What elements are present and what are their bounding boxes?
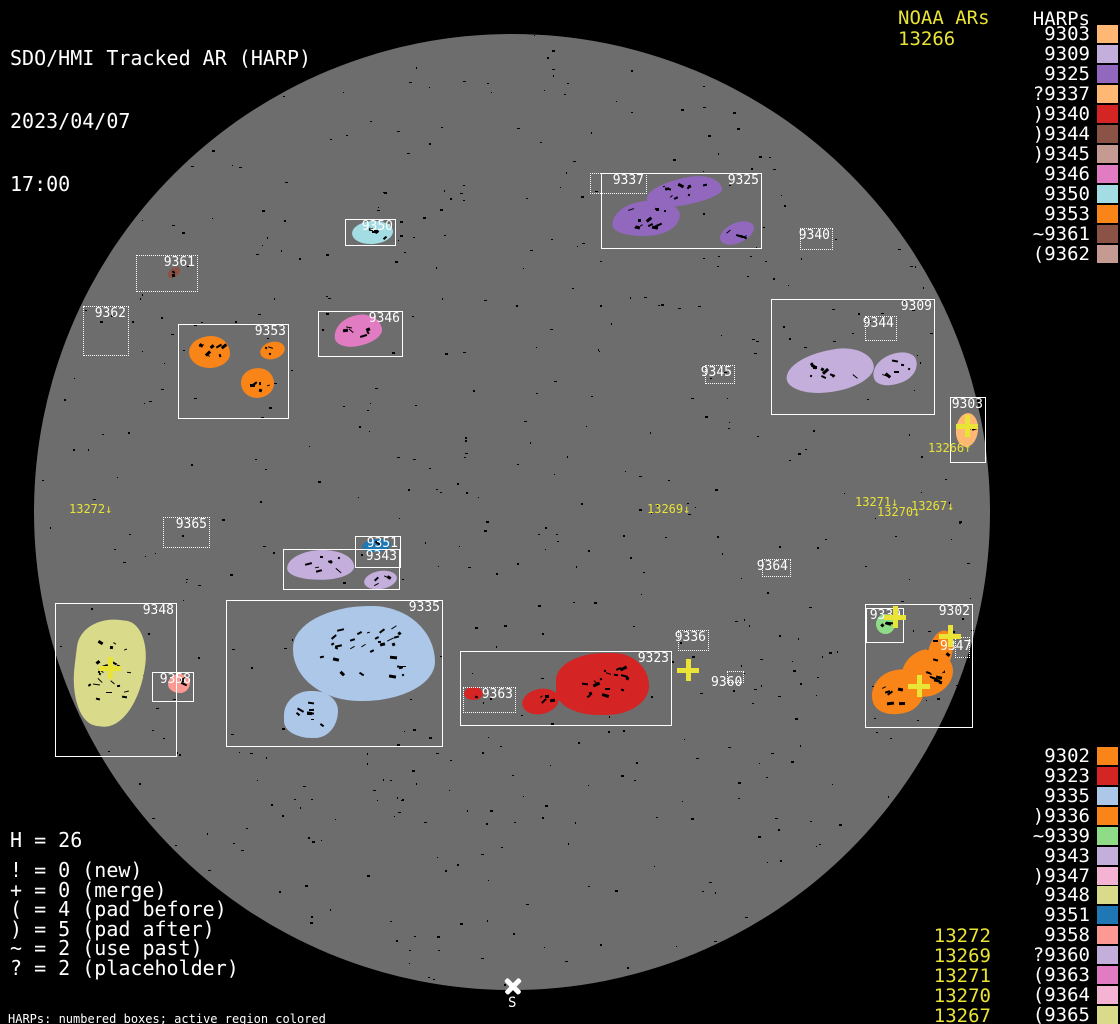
sunspot-speck bbox=[310, 922, 313, 924]
sunspot-speck bbox=[358, 497, 359, 498]
sunspot-speck bbox=[412, 316, 414, 317]
sunspot-speck bbox=[370, 403, 371, 404]
sunspot-speck bbox=[139, 783, 141, 785]
sunspot-speck bbox=[450, 760, 452, 761]
sunspot-speck bbox=[781, 195, 782, 196]
noaa-cross-13272 bbox=[99, 657, 121, 679]
sunspot-speck bbox=[634, 780, 636, 781]
sunspot-speck bbox=[330, 139, 332, 140]
sunspot-speck bbox=[788, 285, 789, 286]
harp-box-label-9365: 9365 bbox=[176, 518, 207, 532]
harp-number: 9346 bbox=[1044, 165, 1090, 184]
sunspot-speck bbox=[835, 239, 837, 240]
sunspot-speck bbox=[717, 266, 719, 267]
sunspot-speck bbox=[644, 297, 647, 298]
harp-number: 9343 bbox=[1044, 847, 1090, 866]
harp-count: H = 26 bbox=[10, 828, 82, 852]
harp-color-swatch bbox=[1097, 886, 1118, 904]
sunspot-speck bbox=[591, 132, 592, 134]
sunspot-speck bbox=[263, 546, 266, 547]
sunspot-speck bbox=[256, 254, 259, 255]
sunspot-speck bbox=[633, 626, 635, 627]
sunspot-speck bbox=[326, 254, 329, 256]
harp-number: ~9361 bbox=[1033, 225, 1090, 244]
harp-box-9343: 9343 bbox=[283, 549, 400, 590]
sunspot-speck bbox=[425, 542, 426, 544]
sunspot-speck bbox=[281, 250, 282, 252]
sunspot-speck bbox=[890, 738, 892, 739]
sunspot-speck bbox=[588, 550, 590, 552]
sunspot-speck bbox=[457, 864, 459, 866]
sunspot-speck bbox=[343, 406, 345, 407]
harp-number: ?9337 bbox=[1033, 85, 1090, 104]
sunspot-speck bbox=[876, 732, 878, 733]
sunspot-speck bbox=[478, 497, 479, 498]
sunspot-speck bbox=[481, 958, 484, 959]
sunspot-speck bbox=[754, 689, 757, 690]
harp-legend-item: )9344 bbox=[860, 125, 1118, 145]
sunspot-speck bbox=[271, 804, 273, 806]
sunspot-speck bbox=[761, 685, 762, 687]
sunspot-speck bbox=[504, 625, 507, 627]
sunspot-speck bbox=[661, 304, 664, 306]
footnotes: HARPs: numbered boxes; active region col… bbox=[8, 988, 427, 1024]
sunspot-speck bbox=[383, 779, 384, 781]
harp-legend-item: 9323 bbox=[860, 767, 1118, 787]
harp-number: )9345 bbox=[1033, 145, 1090, 164]
sunspot-speck bbox=[513, 933, 515, 935]
harp-color-swatch bbox=[1097, 165, 1118, 183]
sunspot-speck bbox=[747, 276, 749, 277]
noaa-label-13272: 13272↓ bbox=[69, 503, 112, 516]
sunspot-speck bbox=[526, 904, 529, 905]
sunspot-speck bbox=[959, 523, 961, 524]
sunspot-speck bbox=[408, 489, 410, 491]
sunspot-speck bbox=[501, 847, 503, 848]
sunspot-speck bbox=[428, 977, 430, 978]
sunspot-speck bbox=[42, 480, 44, 481]
sunspot-speck bbox=[436, 267, 437, 269]
sunspot-speck bbox=[588, 785, 589, 786]
sunspot-speck bbox=[758, 836, 761, 838]
time-line: 17:00 bbox=[10, 174, 311, 195]
harp-legend-item: 9335 bbox=[860, 787, 1118, 807]
sunspot-speck bbox=[198, 585, 201, 586]
harp-box-label-9360: 9360 bbox=[711, 676, 742, 690]
sunspot-speck bbox=[752, 339, 755, 340]
sunspot-speck bbox=[773, 169, 776, 170]
sunspot-speck bbox=[793, 670, 796, 672]
noaa-cross-13269 bbox=[677, 659, 699, 681]
sunspot-speck bbox=[778, 696, 781, 697]
sunspot-speck bbox=[465, 437, 467, 439]
sunspot-speck bbox=[921, 492, 922, 493]
harp-legend-item: 9346 bbox=[860, 165, 1118, 185]
sunspot-speck bbox=[568, 843, 569, 845]
harp-legend-item: )9345 bbox=[860, 145, 1118, 165]
sunspot-speck bbox=[909, 434, 910, 436]
harp-number: 9323 bbox=[1044, 767, 1090, 786]
harp-box-9345: 9345 bbox=[705, 365, 735, 384]
sunspot-speck bbox=[475, 627, 478, 629]
sunspot-speck bbox=[771, 753, 774, 754]
sunspot-speck bbox=[825, 539, 827, 540]
sunspot-speck bbox=[161, 317, 163, 319]
sunspot-speck bbox=[728, 747, 731, 748]
harp-box-9361: 9361 bbox=[136, 255, 198, 292]
sunspot-speck bbox=[817, 677, 819, 678]
sunspot-speck bbox=[722, 553, 723, 555]
sunspot-speck bbox=[416, 783, 417, 785]
sunspot-speck bbox=[901, 601, 904, 602]
sunspot-speck bbox=[140, 298, 141, 300]
sunspot-speck bbox=[668, 480, 670, 481]
sunspot-speck bbox=[654, 866, 655, 867]
sunspot-speck bbox=[415, 405, 417, 406]
sunspot-speck bbox=[449, 790, 450, 791]
sunspot-speck bbox=[792, 661, 793, 662]
sunspot-speck bbox=[639, 476, 642, 477]
sunspot-speck bbox=[798, 453, 801, 455]
harp-legend-item: ?9337 bbox=[860, 85, 1118, 105]
harp-number: (9363 bbox=[1033, 966, 1090, 985]
sunspot-speck bbox=[318, 481, 321, 483]
sunspot-speck bbox=[466, 492, 468, 494]
symbol-legend: ! = 0 (new)+ = 0 (merge)( = 4 (pad befor… bbox=[10, 861, 239, 978]
harp-number: 9335 bbox=[1044, 787, 1090, 806]
harp-legend-item: 9350 bbox=[860, 185, 1118, 205]
harp-legend-item: 9302 bbox=[860, 747, 1118, 767]
sunspot-speck bbox=[573, 161, 576, 162]
harp-color-swatch bbox=[1097, 65, 1118, 83]
south-pole-label: S bbox=[508, 995, 516, 1011]
sunspot-speck bbox=[682, 801, 683, 802]
sunspot-speck bbox=[729, 422, 730, 423]
harp-color-swatch bbox=[1097, 205, 1118, 223]
sunspot-speck bbox=[465, 440, 467, 442]
sunspot-speck bbox=[129, 534, 131, 535]
harp-box-label-9353: 9353 bbox=[255, 325, 286, 339]
sunspot-speck bbox=[409, 950, 411, 951]
sunspot-speck bbox=[696, 758, 699, 759]
harp-color-swatch bbox=[1097, 807, 1118, 825]
sunspot-speck bbox=[517, 128, 520, 129]
harp-box-label-9346: 9346 bbox=[369, 312, 400, 326]
sunspot-speck bbox=[564, 94, 566, 95]
sunspot-speck bbox=[752, 703, 754, 704]
sunspot-speck bbox=[481, 854, 484, 855]
sunspot-speck bbox=[73, 449, 75, 451]
sunspot-speck bbox=[816, 695, 817, 696]
sunspot-speck bbox=[656, 817, 658, 818]
harp-box-label-9361: 9361 bbox=[164, 256, 195, 270]
sunspot-speck bbox=[550, 329, 553, 330]
sunspot-speck bbox=[412, 770, 415, 772]
sunspot-speck bbox=[413, 459, 416, 460]
harp-number: (9362 bbox=[1033, 245, 1090, 264]
sunspot-speck bbox=[512, 775, 514, 776]
sunspot-speck bbox=[400, 235, 403, 237]
sunspot-speck bbox=[152, 818, 155, 819]
sunspot-speck bbox=[578, 742, 580, 744]
noaa-label-13267: 13267↓ bbox=[911, 500, 954, 513]
sunspot-speck bbox=[588, 886, 590, 887]
sunspot-speck bbox=[717, 536, 719, 538]
harp-box-label-9323: 9323 bbox=[638, 652, 669, 666]
harp-legend-item: 9348 bbox=[860, 886, 1118, 906]
harp-color-swatch bbox=[1097, 986, 1118, 1004]
harp-color-swatch bbox=[1097, 145, 1118, 163]
sunspot-speck bbox=[487, 920, 488, 922]
sunspot-speck bbox=[572, 288, 574, 289]
harp-color-swatch bbox=[1097, 125, 1118, 143]
sunspot-speck bbox=[681, 109, 684, 111]
sunspot-speck bbox=[703, 171, 704, 172]
sunspot-speck bbox=[396, 940, 398, 942]
sunspot-speck bbox=[93, 499, 96, 500]
sunspot-speck bbox=[639, 509, 642, 511]
sunspot-speck bbox=[222, 519, 225, 521]
harp-box-9346: 9346 bbox=[318, 311, 403, 357]
harp-legend-item: 9325 bbox=[860, 65, 1118, 85]
sunspot-speck bbox=[375, 388, 378, 389]
harp-legend-item: 13271(9363 bbox=[860, 966, 1118, 986]
harp-box-label-9336: 9336 bbox=[675, 631, 706, 645]
harp-box-9363: 9363 bbox=[463, 687, 516, 713]
sunspot-speck bbox=[207, 833, 208, 835]
sunspot-speck bbox=[460, 193, 463, 194]
sunspot-speck bbox=[444, 190, 445, 192]
sunspot-speck bbox=[643, 572, 645, 573]
sunspot-speck bbox=[305, 885, 308, 887]
sunspot-speck bbox=[715, 892, 716, 894]
sunspot-speck bbox=[565, 961, 568, 962]
sunspot-speck bbox=[544, 947, 545, 948]
sunspot-speck bbox=[440, 209, 443, 211]
sunspot-speck bbox=[516, 305, 518, 307]
harp-number: 9358 bbox=[1044, 926, 1090, 945]
sunspot-speck bbox=[627, 967, 629, 969]
harp-color-swatch bbox=[1097, 867, 1118, 885]
harp-box-label-9358: 9358 bbox=[160, 673, 191, 687]
sunspot-speck bbox=[822, 656, 823, 658]
sunspot-speck bbox=[383, 192, 384, 193]
sunspot-speck bbox=[779, 546, 781, 548]
sunspot-speck bbox=[250, 753, 253, 754]
sunspot-speck bbox=[258, 314, 261, 315]
sunspot-speck bbox=[733, 112, 736, 114]
harp-box-9309: 9309 bbox=[771, 299, 935, 415]
sunspot-speck bbox=[367, 753, 368, 755]
sunspot-speck bbox=[576, 566, 577, 568]
sunspot-speck bbox=[273, 552, 275, 554]
sunspot-speck bbox=[266, 757, 267, 759]
harp-box-label-9335: 9335 bbox=[409, 601, 440, 615]
harp-number: (9365 bbox=[1033, 1006, 1090, 1024]
sunspot-speck bbox=[631, 70, 633, 72]
harp-number: )9344 bbox=[1033, 125, 1090, 144]
sunspot-speck bbox=[175, 845, 177, 846]
sunspot-speck bbox=[377, 800, 378, 801]
sunspot-speck bbox=[488, 880, 489, 881]
sunspot-speck bbox=[909, 579, 910, 580]
sunspot-speck bbox=[750, 256, 752, 257]
harp-legend-item: )9340 bbox=[860, 105, 1118, 125]
sunspot-speck bbox=[631, 112, 633, 113]
harp-color-swatch bbox=[1097, 787, 1118, 805]
sunspot-speck bbox=[416, 67, 417, 69]
sunspot-speck bbox=[442, 298, 443, 300]
title-line: SDO/HMI Tracked AR (HARP) bbox=[10, 48, 311, 69]
sunspot-speck bbox=[819, 844, 821, 845]
sunspot-speck bbox=[721, 335, 722, 336]
harp-color-swatch bbox=[1097, 45, 1118, 63]
sunspot-speck bbox=[545, 805, 548, 807]
harp-box-9336: 9336 bbox=[678, 630, 709, 651]
sunspot-speck bbox=[591, 396, 593, 397]
sunspot-speck bbox=[540, 142, 542, 143]
sunspot-speck bbox=[367, 410, 369, 411]
harp-box-label-9348: 9348 bbox=[143, 604, 174, 618]
sunspot-speck bbox=[566, 172, 567, 174]
harp-number: (9364 bbox=[1033, 986, 1090, 1005]
harp-box-9362: 9362 bbox=[83, 306, 129, 356]
sunspot-speck bbox=[586, 426, 587, 427]
sunspot-speck bbox=[751, 168, 753, 170]
sunspot-speck bbox=[733, 690, 735, 692]
sunspot-speck bbox=[600, 261, 602, 262]
sunspot-speck bbox=[88, 449, 89, 451]
sunspot-speck bbox=[839, 824, 842, 826]
sunspot-speck bbox=[424, 822, 427, 823]
harp-box-label-9362: 9362 bbox=[95, 307, 126, 321]
sunspot-speck bbox=[544, 90, 545, 91]
sunspot-speck bbox=[552, 50, 555, 52]
sunspot-speck bbox=[767, 862, 768, 863]
sunspot-speck bbox=[702, 891, 704, 892]
harp-color-swatch bbox=[1097, 225, 1118, 243]
sunspot-speck bbox=[798, 638, 799, 640]
sunspot-speck bbox=[536, 393, 538, 394]
harp-color-swatch bbox=[1097, 966, 1118, 984]
sunspot-speck bbox=[409, 82, 412, 83]
sunspot-speck bbox=[303, 786, 306, 787]
sunspot-speck bbox=[467, 810, 468, 812]
sunspot-speck bbox=[810, 821, 812, 822]
harp-color-swatch bbox=[1097, 906, 1118, 924]
harp-legend-item: 9343 bbox=[860, 847, 1118, 867]
sunspot-speck bbox=[530, 250, 533, 251]
sunspot-speck bbox=[186, 579, 188, 580]
sunspot-speck bbox=[709, 882, 712, 883]
harp-legend-item: 132729358 bbox=[860, 926, 1118, 946]
sunspot-speck bbox=[459, 546, 460, 547]
sunspot-speck bbox=[444, 235, 446, 236]
symbol-legend-line: ? = 2 (placeholder) bbox=[10, 959, 239, 979]
sunspot-speck bbox=[457, 483, 459, 485]
sunspot-speck bbox=[779, 635, 781, 637]
sunspot-speck bbox=[102, 434, 104, 435]
sunspot-speck bbox=[691, 398, 694, 399]
sunspot-speck bbox=[282, 815, 284, 817]
sunspot-speck bbox=[262, 245, 263, 246]
sunspot-speck bbox=[678, 308, 681, 309]
sunspot-speck bbox=[440, 492, 442, 493]
sunspot-speck bbox=[117, 477, 118, 478]
harp-number: 9351 bbox=[1044, 906, 1090, 925]
sunspot-speck bbox=[684, 739, 685, 740]
harp-legend-item: 13269?9360 bbox=[860, 946, 1118, 966]
sunspot-speck bbox=[390, 780, 392, 781]
sunspot-speck bbox=[767, 592, 769, 594]
noaa-ar-number: 13271 bbox=[934, 967, 991, 986]
harp-number: 9350 bbox=[1044, 185, 1090, 204]
sunspot-speck bbox=[496, 573, 498, 575]
sunspot-speck bbox=[754, 353, 757, 354]
harp-color-swatch bbox=[1097, 926, 1118, 944]
harp-color-swatch bbox=[1097, 105, 1118, 123]
sunspot-speck bbox=[865, 566, 867, 567]
harp-color-swatch bbox=[1097, 245, 1118, 263]
sunspot-speck bbox=[600, 305, 602, 307]
harp-legend-item: 9303 bbox=[860, 25, 1118, 45]
sunspot-speck bbox=[177, 752, 178, 754]
noaa-cross-13266 bbox=[956, 415, 978, 437]
sunspot-speck bbox=[875, 518, 876, 519]
sunspot-speck bbox=[829, 652, 832, 654]
sunspot-speck bbox=[74, 378, 75, 379]
sunspot-speck bbox=[658, 305, 660, 306]
sunspot-speck bbox=[676, 946, 677, 947]
sunspot-speck bbox=[445, 353, 448, 355]
sunspot-speck bbox=[397, 797, 398, 799]
sunspot-speck bbox=[330, 909, 331, 911]
sunspot-speck bbox=[599, 351, 600, 352]
sunspot-speck bbox=[759, 156, 762, 158]
sunspot-speck bbox=[625, 471, 626, 472]
sunspot-speck bbox=[703, 86, 705, 87]
sunspot-speck bbox=[400, 221, 403, 223]
sunspot-speck bbox=[198, 657, 200, 659]
sunspot-speck bbox=[895, 536, 897, 537]
sunspot-speck bbox=[738, 782, 741, 784]
sunspot-speck bbox=[560, 187, 561, 188]
sunspot-speck bbox=[255, 459, 257, 460]
date-line: 2023/04/07 bbox=[10, 111, 311, 132]
sunspot-speck bbox=[265, 469, 267, 470]
sunspot-speck bbox=[179, 754, 181, 756]
harp-number: )9340 bbox=[1033, 105, 1090, 124]
sunspot-speck bbox=[311, 916, 313, 918]
sunspot-speck bbox=[441, 127, 443, 128]
sunspot-speck bbox=[594, 602, 597, 604]
sunspot-speck bbox=[482, 752, 484, 754]
sunspot-speck bbox=[488, 737, 489, 738]
sunspot-speck bbox=[816, 846, 817, 847]
sunspot-speck bbox=[630, 557, 632, 559]
sunspot-speck bbox=[390, 921, 392, 922]
sunspot-speck bbox=[523, 796, 524, 797]
sunspot-speck bbox=[765, 261, 767, 262]
sunspot-speck bbox=[844, 493, 845, 494]
harp-number: )9336 bbox=[1033, 807, 1090, 826]
sunspot-speck bbox=[291, 370, 293, 371]
sunspot-speck bbox=[641, 594, 642, 595]
harp-legend-item: ~9361 bbox=[860, 225, 1118, 245]
harp-color-swatch bbox=[1097, 767, 1118, 785]
sunspot-speck bbox=[630, 297, 631, 299]
sunspot-speck bbox=[718, 153, 719, 155]
